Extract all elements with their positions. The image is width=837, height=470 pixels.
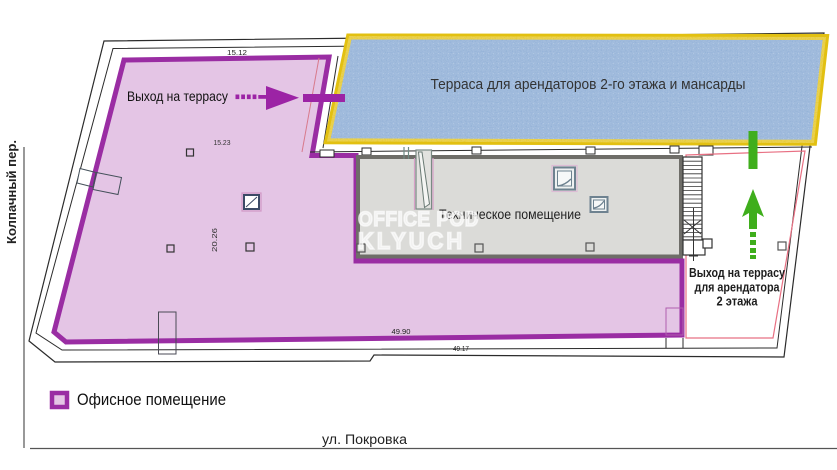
svg-text:Колпачный пер.: Колпачный пер. [4, 140, 19, 244]
svg-text:49.17: 49.17 [453, 344, 469, 353]
svg-text:15.12: 15.12 [227, 48, 247, 57]
svg-text:Выход на террасу: Выход на террасу [127, 89, 228, 104]
svg-text:49.90: 49.90 [392, 327, 411, 336]
svg-text:15.23: 15.23 [214, 138, 231, 147]
svg-text:2 этажа: 2 этажа [717, 295, 759, 309]
svg-text:KLYUCH: KLYUCH [358, 228, 465, 255]
svg-text:Терраса для арендаторов 2-го э: Терраса для арендаторов 2-го этажа и ман… [431, 77, 746, 93]
svg-text:Офисное помещение: Офисное помещение [77, 390, 226, 409]
svg-text:Выход на террасу: Выход на террасу [689, 266, 785, 280]
svg-text:ул. Покровка: ул. Покровка [322, 432, 408, 447]
svg-text:для арендатора: для арендатора [695, 281, 781, 295]
svg-text:20.26: 20.26 [210, 228, 219, 252]
